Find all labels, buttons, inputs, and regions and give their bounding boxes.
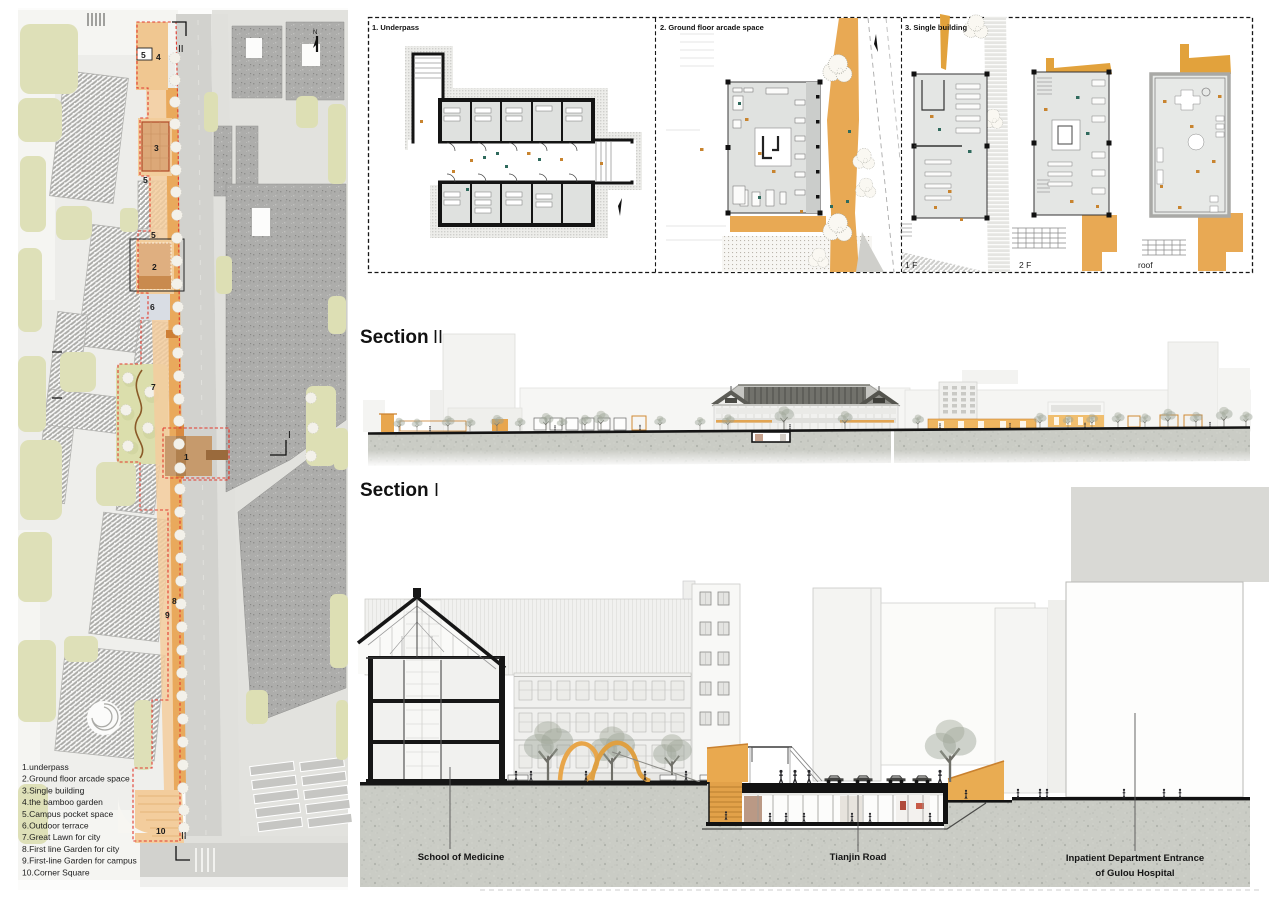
svg-text:6: 6 — [150, 302, 155, 312]
svg-text:I: I — [288, 430, 291, 441]
svg-text:I: I — [434, 480, 439, 500]
svg-text:II: II — [433, 327, 443, 347]
svg-text:3. Single building: 3. Single building — [905, 23, 968, 32]
svg-text:2 F: 2 F — [1019, 260, 1031, 270]
svg-text:of Gulou Hospital: of Gulou Hospital — [1095, 868, 1174, 879]
svg-text:7.Great Lawn for city: 7.Great Lawn for city — [22, 832, 101, 842]
svg-text:Inpatient Department Entrance: Inpatient Department Entrance — [1066, 853, 1204, 864]
svg-text:roof: roof — [1138, 260, 1153, 270]
svg-text:2.Ground floor arcade space: 2.Ground floor arcade space — [22, 774, 130, 784]
svg-text:4.the bamboo garden: 4.the bamboo garden — [22, 797, 103, 807]
svg-text:School of Medicine: School of Medicine — [418, 852, 505, 863]
svg-text:Tianjin Road: Tianjin Road — [830, 852, 887, 863]
svg-text:3.Single building: 3.Single building — [22, 785, 85, 795]
svg-text:3: 3 — [154, 143, 159, 153]
svg-text:2: 2 — [152, 262, 157, 272]
svg-text:5: 5 — [151, 230, 156, 240]
svg-text:5.Campus pocket space: 5.Campus pocket space — [22, 809, 113, 819]
svg-text:4: 4 — [156, 52, 161, 62]
svg-text:7: 7 — [151, 382, 156, 392]
svg-text:II: II — [181, 831, 187, 842]
svg-text:10: 10 — [156, 826, 166, 836]
svg-text:10.Corner Square: 10.Corner Square — [22, 867, 90, 877]
svg-text:II: II — [178, 44, 184, 55]
svg-text:9.First-line Garden for campus: 9.First-line Garden for campus — [22, 856, 137, 866]
svg-text:5: 5 — [141, 50, 146, 60]
svg-text:1: 1 — [184, 452, 189, 462]
svg-text:Section: Section — [360, 327, 429, 348]
svg-text:5: 5 — [143, 175, 148, 185]
svg-text:9: 9 — [165, 610, 170, 620]
svg-text:6.Outdoor terrace: 6.Outdoor terrace — [22, 821, 89, 831]
svg-text:1.underpass: 1.underpass — [22, 762, 69, 772]
svg-text:2. Ground floor arcade space: 2. Ground floor arcade space — [660, 23, 764, 32]
svg-text:8: 8 — [172, 596, 177, 606]
svg-text:Section: Section — [360, 480, 429, 501]
svg-text:1 F: 1 F — [905, 260, 917, 270]
svg-text:1. Underpass: 1. Underpass — [372, 23, 419, 32]
svg-text:8.First line Garden for city: 8.First line Garden for city — [22, 844, 120, 854]
svg-text:N: N — [313, 30, 317, 36]
